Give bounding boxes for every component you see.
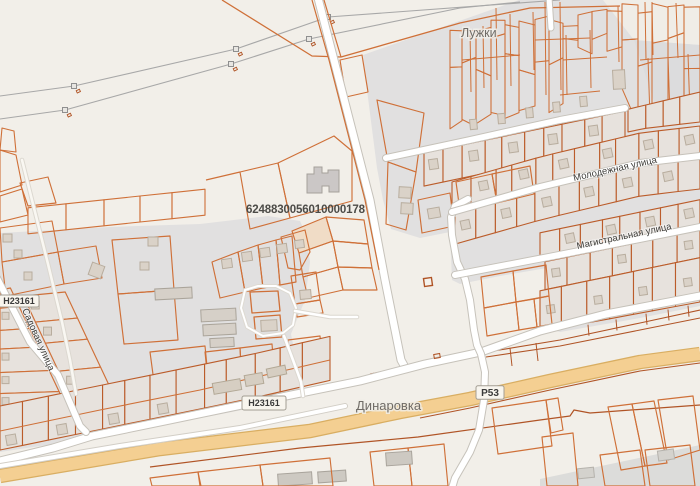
svg-text:Н23161: Н23161 bbox=[3, 296, 35, 306]
svg-text:Н23161: Н23161 bbox=[248, 398, 280, 408]
svg-text:Р53: Р53 bbox=[481, 388, 499, 399]
svg-text:Лужки: Лужки bbox=[461, 26, 497, 40]
svg-text:Динаровка: Динаровка bbox=[356, 398, 422, 413]
svg-text:6248830056010000178: 6248830056010000178 bbox=[246, 204, 366, 216]
